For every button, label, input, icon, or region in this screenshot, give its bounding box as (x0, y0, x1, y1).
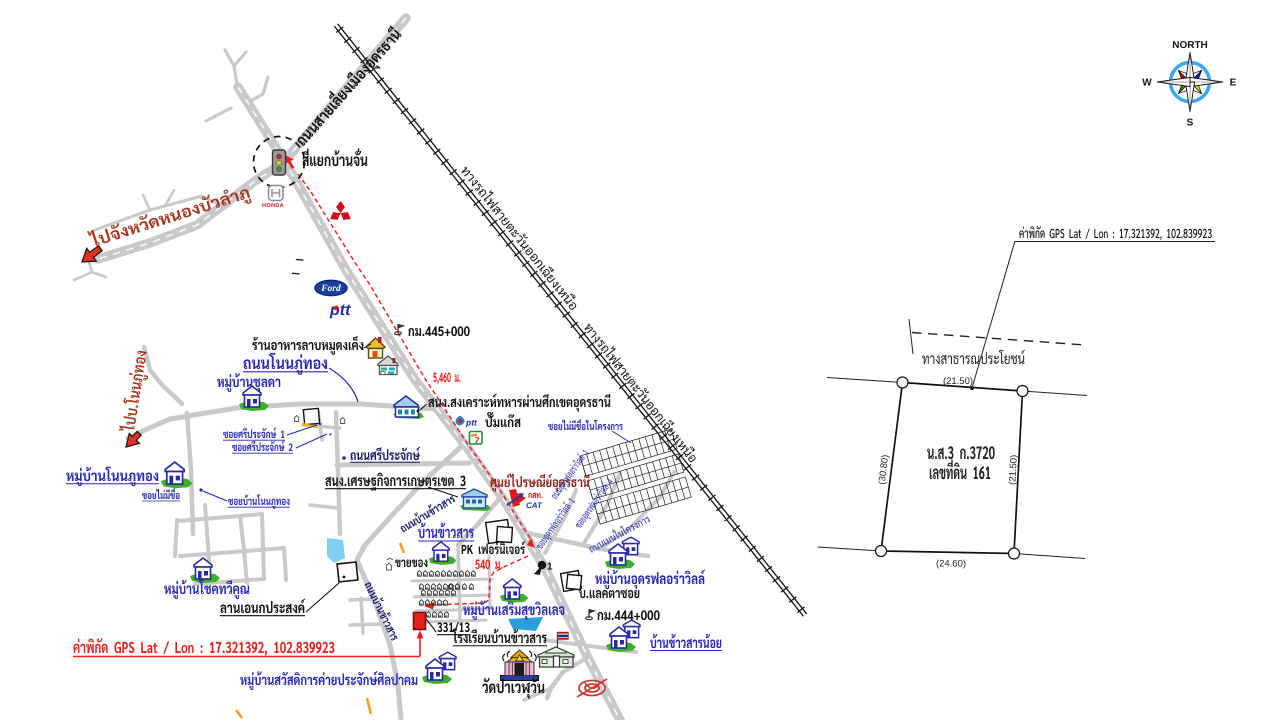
svg-text:NORTH: NORTH (1172, 40, 1208, 51)
svg-text:(21.50): (21.50) (1007, 455, 1020, 486)
svg-text:CAT: CAT (526, 501, 543, 510)
svg-text:ptt: ptt (465, 418, 478, 428)
svg-text:S: S (1187, 118, 1194, 129)
svg-text:HONDA: HONDA (262, 203, 284, 209)
svg-text:ptt: ptt (329, 302, 351, 319)
svg-text:(24.60): (24.60) (936, 559, 966, 570)
svg-text:E: E (1230, 78, 1237, 89)
svg-text:(21.50): (21.50) (943, 376, 973, 387)
svg-text:1: 1 (547, 562, 553, 573)
svg-text:W: W (1142, 78, 1152, 89)
svg-text:Ford: Ford (320, 284, 341, 294)
